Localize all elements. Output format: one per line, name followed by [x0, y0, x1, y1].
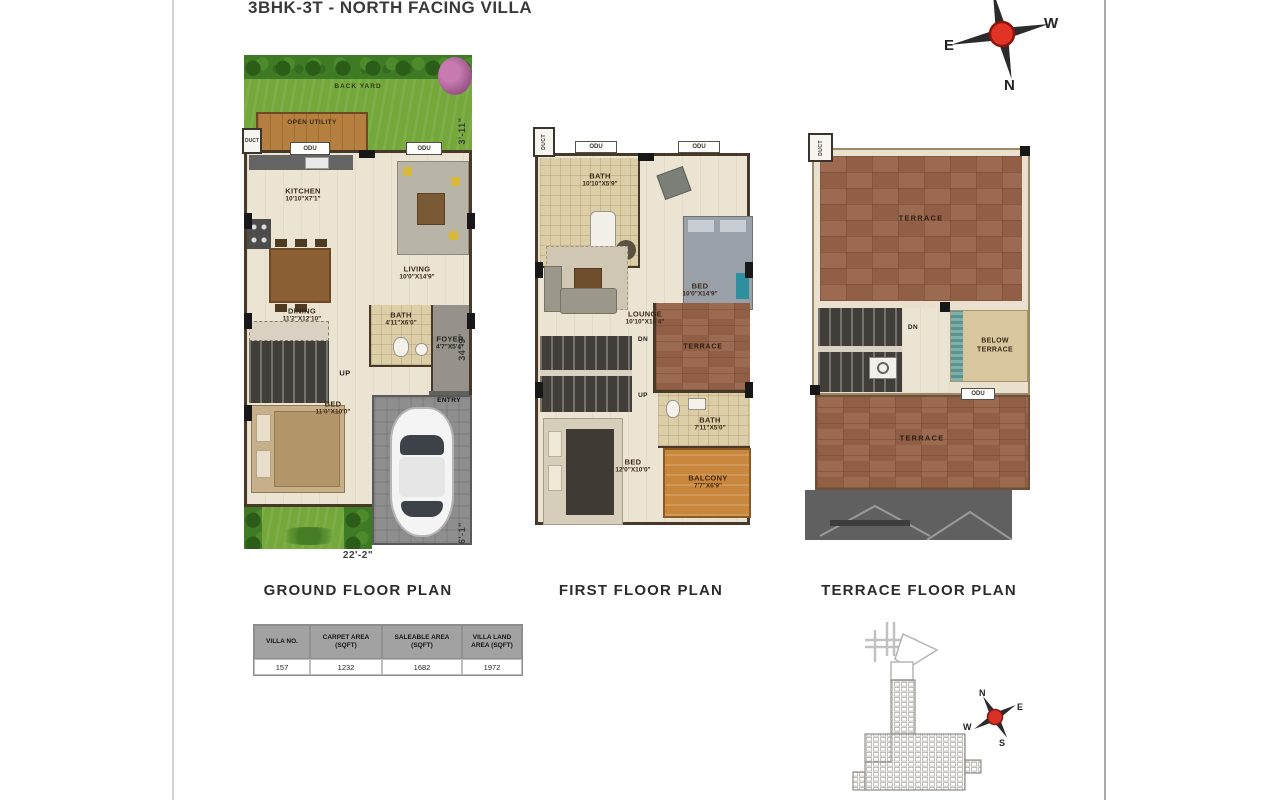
dining-table: [269, 248, 331, 303]
duct-box: DUCT: [808, 133, 833, 162]
sitemap-compass-icon: N E W S: [955, 680, 1035, 755]
parking-label: PARKING: [401, 418, 442, 427]
front-garden: [244, 507, 372, 549]
back-yard-label: BACK YARD: [334, 83, 381, 91]
bed-label: BED 11'0"X10'0": [316, 399, 351, 417]
up-label: UP: [339, 368, 350, 377]
below-terrace-hatch: [951, 311, 963, 381]
table-cell: 1972: [462, 659, 522, 675]
dim-bottom: 22'-2": [240, 550, 476, 561]
pillow: [256, 414, 271, 442]
table-cell: 1682: [382, 659, 462, 675]
staircase: [818, 308, 902, 392]
table-header: CARPET AREA (SQFT): [310, 625, 382, 659]
cushion: [403, 167, 412, 176]
first-floor-title: FIRST FLOOR PLAN: [530, 582, 752, 599]
pillow: [548, 431, 562, 457]
terrace-top-area: [820, 156, 1022, 301]
cushion: [449, 231, 458, 240]
toilet: [393, 337, 409, 357]
dining-label: DINING 11'2"X12'10": [283, 306, 322, 324]
coffee-table: [417, 193, 445, 225]
shrub: [274, 527, 344, 545]
sitemap-compass-s: S: [999, 738, 1005, 748]
pillow: [720, 220, 746, 232]
open-utility-label: OPEN UTILITY: [287, 119, 337, 127]
kitchen-sink: [305, 157, 329, 169]
plants: [344, 507, 372, 549]
first-building: BATH 10'10"X5'9" BED 10'0"X14'9" LOUNGE …: [535, 153, 750, 525]
lounge-label: LOUNGE 10'10"X10'4": [626, 309, 665, 327]
compass-rose-icon: E W N: [938, 0, 1068, 92]
ground-floor-title: GROUND FLOOR PLAN: [240, 582, 476, 599]
terrace-floor-title: TERRACE FLOOR PLAN: [805, 582, 1033, 599]
sitemap-compass-n: N: [979, 688, 986, 698]
photo-right-edge: [1104, 0, 1106, 800]
kitchen-counter: [249, 155, 353, 170]
up-label: UP: [638, 392, 648, 400]
sitemap-compass-e: E: [1017, 702, 1023, 712]
photo-left-edge: [172, 0, 174, 800]
dining-chair: [315, 239, 327, 247]
compass-north-label: N: [1004, 77, 1015, 92]
dining-chair: [275, 239, 287, 247]
stair-lobby: [902, 308, 948, 392]
table-cell: 1232: [310, 659, 382, 675]
compass-east-label: E: [944, 37, 954, 54]
odu-box: ODU: [290, 142, 330, 155]
bath-label: BATH 4'11"X6'0": [385, 310, 416, 328]
bed-label: BED 12'0"X10'0": [615, 457, 650, 475]
odu-box: ODU: [961, 388, 995, 400]
pillow: [548, 465, 562, 491]
odu-box: ODU: [678, 141, 720, 153]
living-label: LIVING 10'0"X14'9": [399, 264, 434, 282]
pillow: [688, 220, 714, 232]
sofa: [560, 288, 617, 314]
stair-void: [249, 321, 329, 341]
entry-label: ENTRY: [437, 397, 461, 405]
dim-left-bottom: 6'-1": [457, 522, 467, 544]
wash-basin: [688, 398, 706, 410]
floorplan-sheet: 3BHK-3T - NORTH FACING VILLA E W N BACK …: [0, 0, 1280, 800]
duct-box: DUCT: [242, 128, 262, 154]
roof-slab: [805, 490, 1012, 540]
blanket: [566, 429, 614, 515]
villa-area-table: VILLA NO. CARPET AREA (SQFT) SALEABLE AR…: [253, 624, 523, 676]
pillow: [256, 450, 271, 478]
foyer-label: FOYER 4'7"X5'4": [436, 334, 464, 352]
roof-ridges-icon: [805, 490, 1012, 540]
odu-box: ODU: [406, 142, 442, 155]
table-header: SALEABLE AREA (SQFT): [382, 625, 462, 659]
ground-floor-plan: BACK YARD OPEN UTILITY DUCT ODU ODU KITC…: [240, 55, 476, 560]
table-header: VILLA LAND AREA (SQFT): [462, 625, 522, 659]
kitchen-label: KITCHEN 10'10"X7'1": [285, 186, 320, 204]
toilet: [666, 400, 680, 418]
duct-box: DUCT: [533, 127, 555, 157]
cushion: [451, 177, 460, 186]
table-cell: 157: [254, 659, 310, 675]
terrace-label: TERRACE: [899, 213, 944, 222]
car-rear-window: [401, 501, 443, 517]
dn-label: DN: [908, 324, 918, 332]
sitemap-compass-w: W: [963, 722, 972, 732]
odu-box: ODU: [575, 141, 617, 153]
balcony-label: BALCONY 7'7"X6'9": [688, 473, 727, 491]
terrace-label: TERRACE: [900, 433, 945, 442]
dim-left-top: 3'-11": [457, 118, 467, 145]
table-header: VILLA NO.: [254, 625, 310, 659]
bath-label: BATH 7'11"X5'0": [694, 415, 725, 433]
staircase: [540, 336, 632, 412]
armchair: [656, 166, 691, 200]
car-roof: [399, 457, 445, 497]
terrace-label: TERRACE: [683, 344, 722, 353]
first-floor-plan: DUCT ODU ODU BATH 10'10"X5'9" BED 10'0"X…: [530, 125, 752, 527]
below-terrace-label: BELOW TERRACE: [967, 337, 1023, 355]
flower-bush: [438, 57, 472, 95]
compass-west-label: W: [1044, 15, 1059, 32]
washer-drum: [877, 362, 889, 374]
washer: [869, 357, 897, 379]
wash-basin: [415, 343, 428, 356]
bed-furniture: [251, 405, 345, 493]
terrace-floor-plan: DUCT TERRACE DN BELOW TERRACE ODU TERRAC…: [805, 130, 1033, 545]
car-windshield: [400, 435, 444, 455]
blanket: [274, 411, 340, 487]
dn-label: DN: [638, 336, 648, 344]
bath-label: BATH 10'10"X5'9": [582, 171, 617, 189]
bed-furniture: [543, 418, 623, 525]
stair-landing: [540, 370, 632, 376]
stair-landing: [818, 346, 902, 352]
dining-chair: [295, 239, 307, 247]
page-title: 3BHK-3T - NORTH FACING VILLA: [248, 0, 532, 18]
bed-label: BED 10'0"X14'9": [682, 281, 717, 299]
plants: [244, 507, 262, 549]
